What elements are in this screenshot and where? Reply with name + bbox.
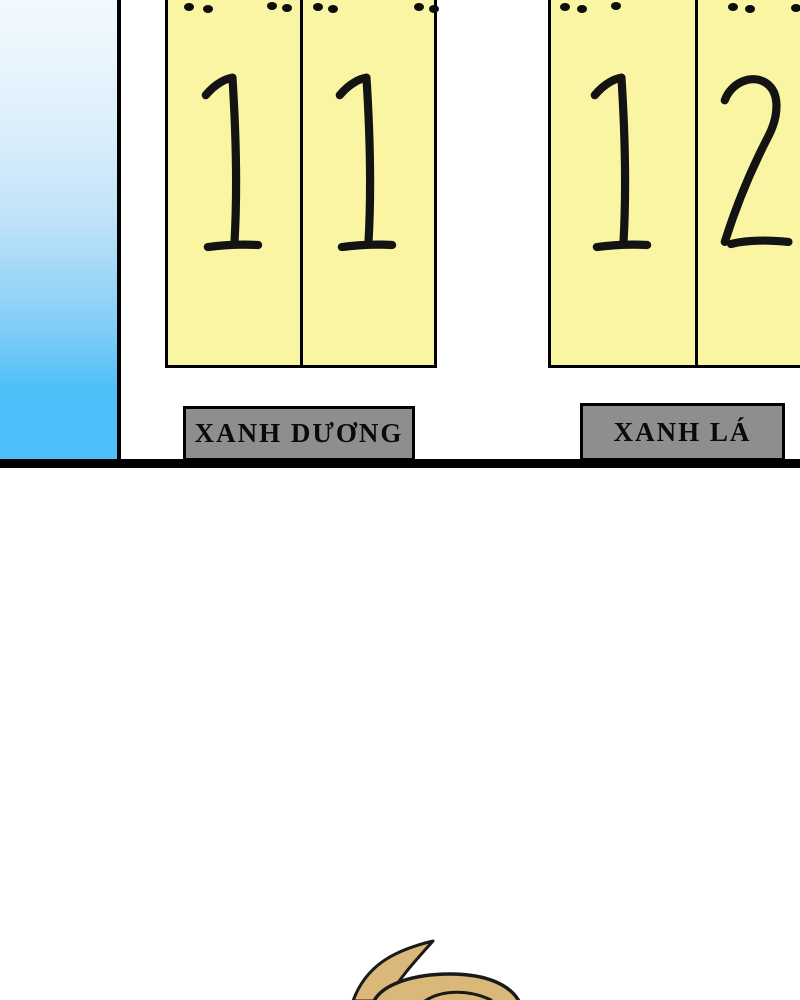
character-head-top xyxy=(330,930,542,1000)
comic-panel: XANH DƯƠNG XANH LÁ xyxy=(0,0,800,1000)
sky-panel-border-line xyxy=(117,0,121,460)
cut-off-text-dot xyxy=(791,4,800,12)
score-card-green-team xyxy=(548,0,800,368)
sky-gradient-panel xyxy=(0,0,117,460)
score-card-ones-digit-green xyxy=(698,0,800,365)
score-card-blue-team xyxy=(165,0,437,368)
score-card-tens-digit-blue xyxy=(168,0,303,365)
cut-off-text-dot xyxy=(328,5,338,13)
digit-2-drawing xyxy=(694,61,800,273)
cut-off-text-dot xyxy=(560,3,570,11)
cut-off-text-dot xyxy=(728,3,738,11)
team-label-green: XANH LÁ xyxy=(580,403,785,461)
digit-1-drawing xyxy=(564,61,682,273)
cut-off-text-dot xyxy=(745,5,755,13)
cut-off-text-dot xyxy=(267,2,277,10)
digit-1-drawing xyxy=(309,61,427,273)
cut-off-text-dot xyxy=(313,3,323,11)
team-name-green: XANH LÁ xyxy=(614,417,752,448)
ground-line xyxy=(0,459,800,468)
team-label-blue: XANH DƯƠNG xyxy=(183,406,415,461)
cut-off-text-dot xyxy=(429,5,439,13)
cut-off-text-dot xyxy=(282,4,292,12)
cut-off-text-dot xyxy=(184,3,194,11)
cut-off-text-dot xyxy=(203,5,213,13)
cut-off-text-dot xyxy=(414,3,424,11)
digit-1-drawing xyxy=(175,61,293,273)
cut-off-text-dot xyxy=(611,2,621,10)
score-card-tens-digit-green xyxy=(551,0,698,365)
score-card-ones-digit-blue xyxy=(303,0,435,365)
cut-off-text-dot xyxy=(577,5,587,13)
team-name-blue: XANH DƯƠNG xyxy=(195,418,404,449)
